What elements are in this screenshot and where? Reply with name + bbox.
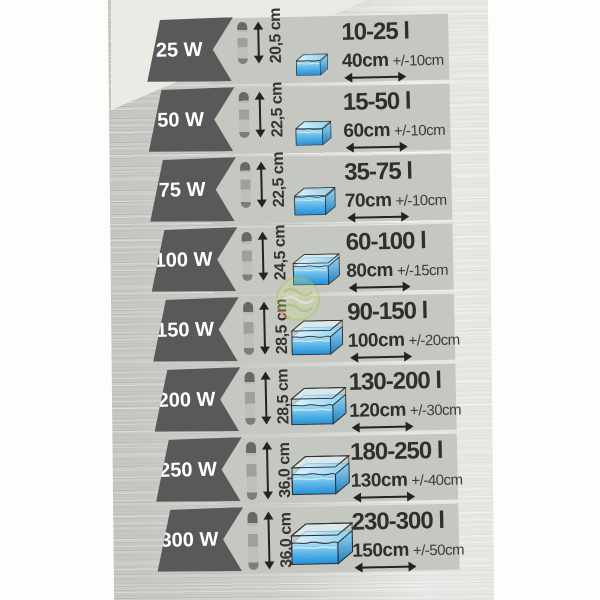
- width-tolerance: +/-40cm: [411, 471, 462, 489]
- heater-tube-icon: [239, 92, 250, 138]
- volume-range-label: 130-200 l: [348, 367, 441, 397]
- tank-width-arrow-icon: [352, 421, 414, 432]
- table-row: 20,5 cm 10-25 l 40cm+/-10cm 25 W: [146, 12, 451, 88]
- tank-width-arrow-icon: [350, 352, 412, 363]
- width-value: 60cm: [343, 120, 390, 142]
- aquarium-icon: [289, 451, 352, 497]
- tank-width-label: 40cm+/-10cm: [342, 49, 444, 73]
- heater-length-arrow-icon: [252, 22, 265, 64]
- heater-length-arrow-icon: [257, 231, 270, 280]
- heater-length-label: 20,5 cm: [287, 21, 288, 63]
- aquarium-icon: [295, 51, 330, 77]
- heater-length-label: 22,5 cm: [290, 161, 291, 207]
- heater-tube-icon: [246, 442, 257, 500]
- width-value: 100cm: [348, 330, 405, 352]
- table-row: 36,0 cm 180-250 l 130cm+/-40cm 250 W: [155, 432, 460, 508]
- volume-range-label: 35-75 l: [344, 157, 412, 186]
- heater-length-arrow-icon: [261, 441, 274, 499]
- heater-size-chart: 20,5 cm 10-25 l 40cm+/-10cm 25 W 22,5 cm…: [0, 0, 600, 600]
- heater-length-arrow-icon: [254, 92, 267, 138]
- row-panel: 20,5 cm 10-25 l 40cm+/-10cm: [208, 14, 449, 85]
- heater-length-arrow-icon: [262, 511, 275, 569]
- table-row: 28,5 cm 130-200 l 120cm+/-30cm 200 W: [153, 362, 458, 438]
- width-tolerance: +/-20cm: [408, 332, 459, 350]
- volume-range-label: 15-50 l: [343, 87, 411, 116]
- tank-width-arrow-icon: [347, 212, 409, 223]
- tank-width-arrow-icon: [346, 142, 408, 153]
- width-tolerance: +/-10cm: [392, 52, 443, 70]
- width-tolerance: +/-30cm: [410, 401, 461, 419]
- row-panel: 22,5 cm 35-75 l 70cm+/-10cm: [211, 154, 452, 225]
- tank-width-label: 120cm+/-30cm: [349, 398, 461, 422]
- table-row: 24,5 cm 60-100 l 80cm+/-15cm 100 W: [150, 222, 455, 298]
- tank-width-label: 130cm+/-40cm: [351, 468, 463, 492]
- heater-length-arrow-icon: [259, 371, 272, 424]
- row-panel: 28,5 cm 130-200 l 120cm+/-30cm: [215, 364, 456, 435]
- tank-width-label: 60cm+/-10cm: [343, 119, 445, 143]
- row-panel: 36,0 cm 230-300 l 150cm+/-50cm: [218, 504, 459, 575]
- width-tolerance: +/-10cm: [394, 122, 445, 140]
- volume-range-label: 180-250 l: [350, 437, 443, 467]
- heater-length-label: 22,5 cm: [289, 91, 290, 137]
- width-value: 70cm: [345, 190, 392, 212]
- heater-tube-icon: [243, 302, 254, 355]
- aquarium-icon: [294, 118, 333, 147]
- tank-width-label: 100cm+/-20cm: [348, 329, 460, 353]
- tank-width-label: 70cm+/-10cm: [345, 189, 447, 213]
- volume-range-label: 60-100 l: [345, 227, 426, 257]
- tank-width-arrow-icon: [349, 282, 411, 293]
- volume-range-label: 230-300 l: [351, 507, 444, 537]
- width-value: 150cm: [352, 540, 409, 562]
- heater-length-arrow-icon: [255, 161, 268, 207]
- row-panel: 36,0 cm 180-250 l 130cm+/-40cm: [217, 434, 458, 505]
- table-row: 22,5 cm 35-75 l 70cm+/-10cm 75 W: [149, 152, 454, 228]
- width-value: 80cm: [346, 260, 393, 282]
- heater-tube-icon: [237, 22, 248, 64]
- aquarium-icon: [289, 518, 356, 567]
- width-value: 120cm: [349, 400, 406, 422]
- table-row: 28,5 cm 90-150 l 100cm+/-20cm 150 W: [152, 292, 457, 368]
- tank-width-label: 80cm+/-15cm: [346, 259, 448, 283]
- tank-width-arrow-icon: [344, 72, 406, 83]
- chart-rows: 20,5 cm 10-25 l 40cm+/-10cm 25 W 22,5 cm…: [146, 12, 462, 582]
- volume-range-label: 90-150 l: [347, 297, 428, 327]
- volume-range-label: 10-25 l: [341, 17, 409, 46]
- table-row: 22,5 cm 15-50 l 60cm+/-10cm 50 W: [147, 82, 452, 158]
- heater-length-arrow-icon: [258, 301, 271, 354]
- tank-width-arrow-icon: [354, 561, 416, 572]
- heater-tube-icon: [242, 232, 253, 281]
- heater-tube-icon: [244, 372, 255, 425]
- heater-tube-icon: [247, 512, 258, 570]
- width-tolerance: +/-50cm: [413, 541, 464, 559]
- row-panel: 22,5 cm 15-50 l 60cm+/-10cm: [209, 84, 450, 155]
- width-value: 40cm: [342, 50, 389, 72]
- table-row: 36,0 cm 230-300 l 150cm+/-50cm 300 W: [156, 502, 461, 578]
- aquarium-icon: [289, 316, 345, 357]
- width-tolerance: +/-10cm: [395, 192, 446, 210]
- tank-width-arrow-icon: [353, 491, 415, 502]
- aquarium-icon: [293, 184, 338, 217]
- aquarium-icon: [289, 383, 349, 427]
- width-value: 130cm: [351, 470, 408, 492]
- aquarium-icon: [291, 250, 342, 287]
- heater-tube-icon: [240, 162, 251, 208]
- width-tolerance: +/-15cm: [397, 262, 448, 280]
- tank-width-label: 150cm+/-50cm: [352, 538, 464, 562]
- row-panel: 24,5 cm 60-100 l 80cm+/-15cm: [212, 224, 453, 295]
- row-panel: 28,5 cm 90-150 l 100cm+/-20cm: [214, 294, 455, 365]
